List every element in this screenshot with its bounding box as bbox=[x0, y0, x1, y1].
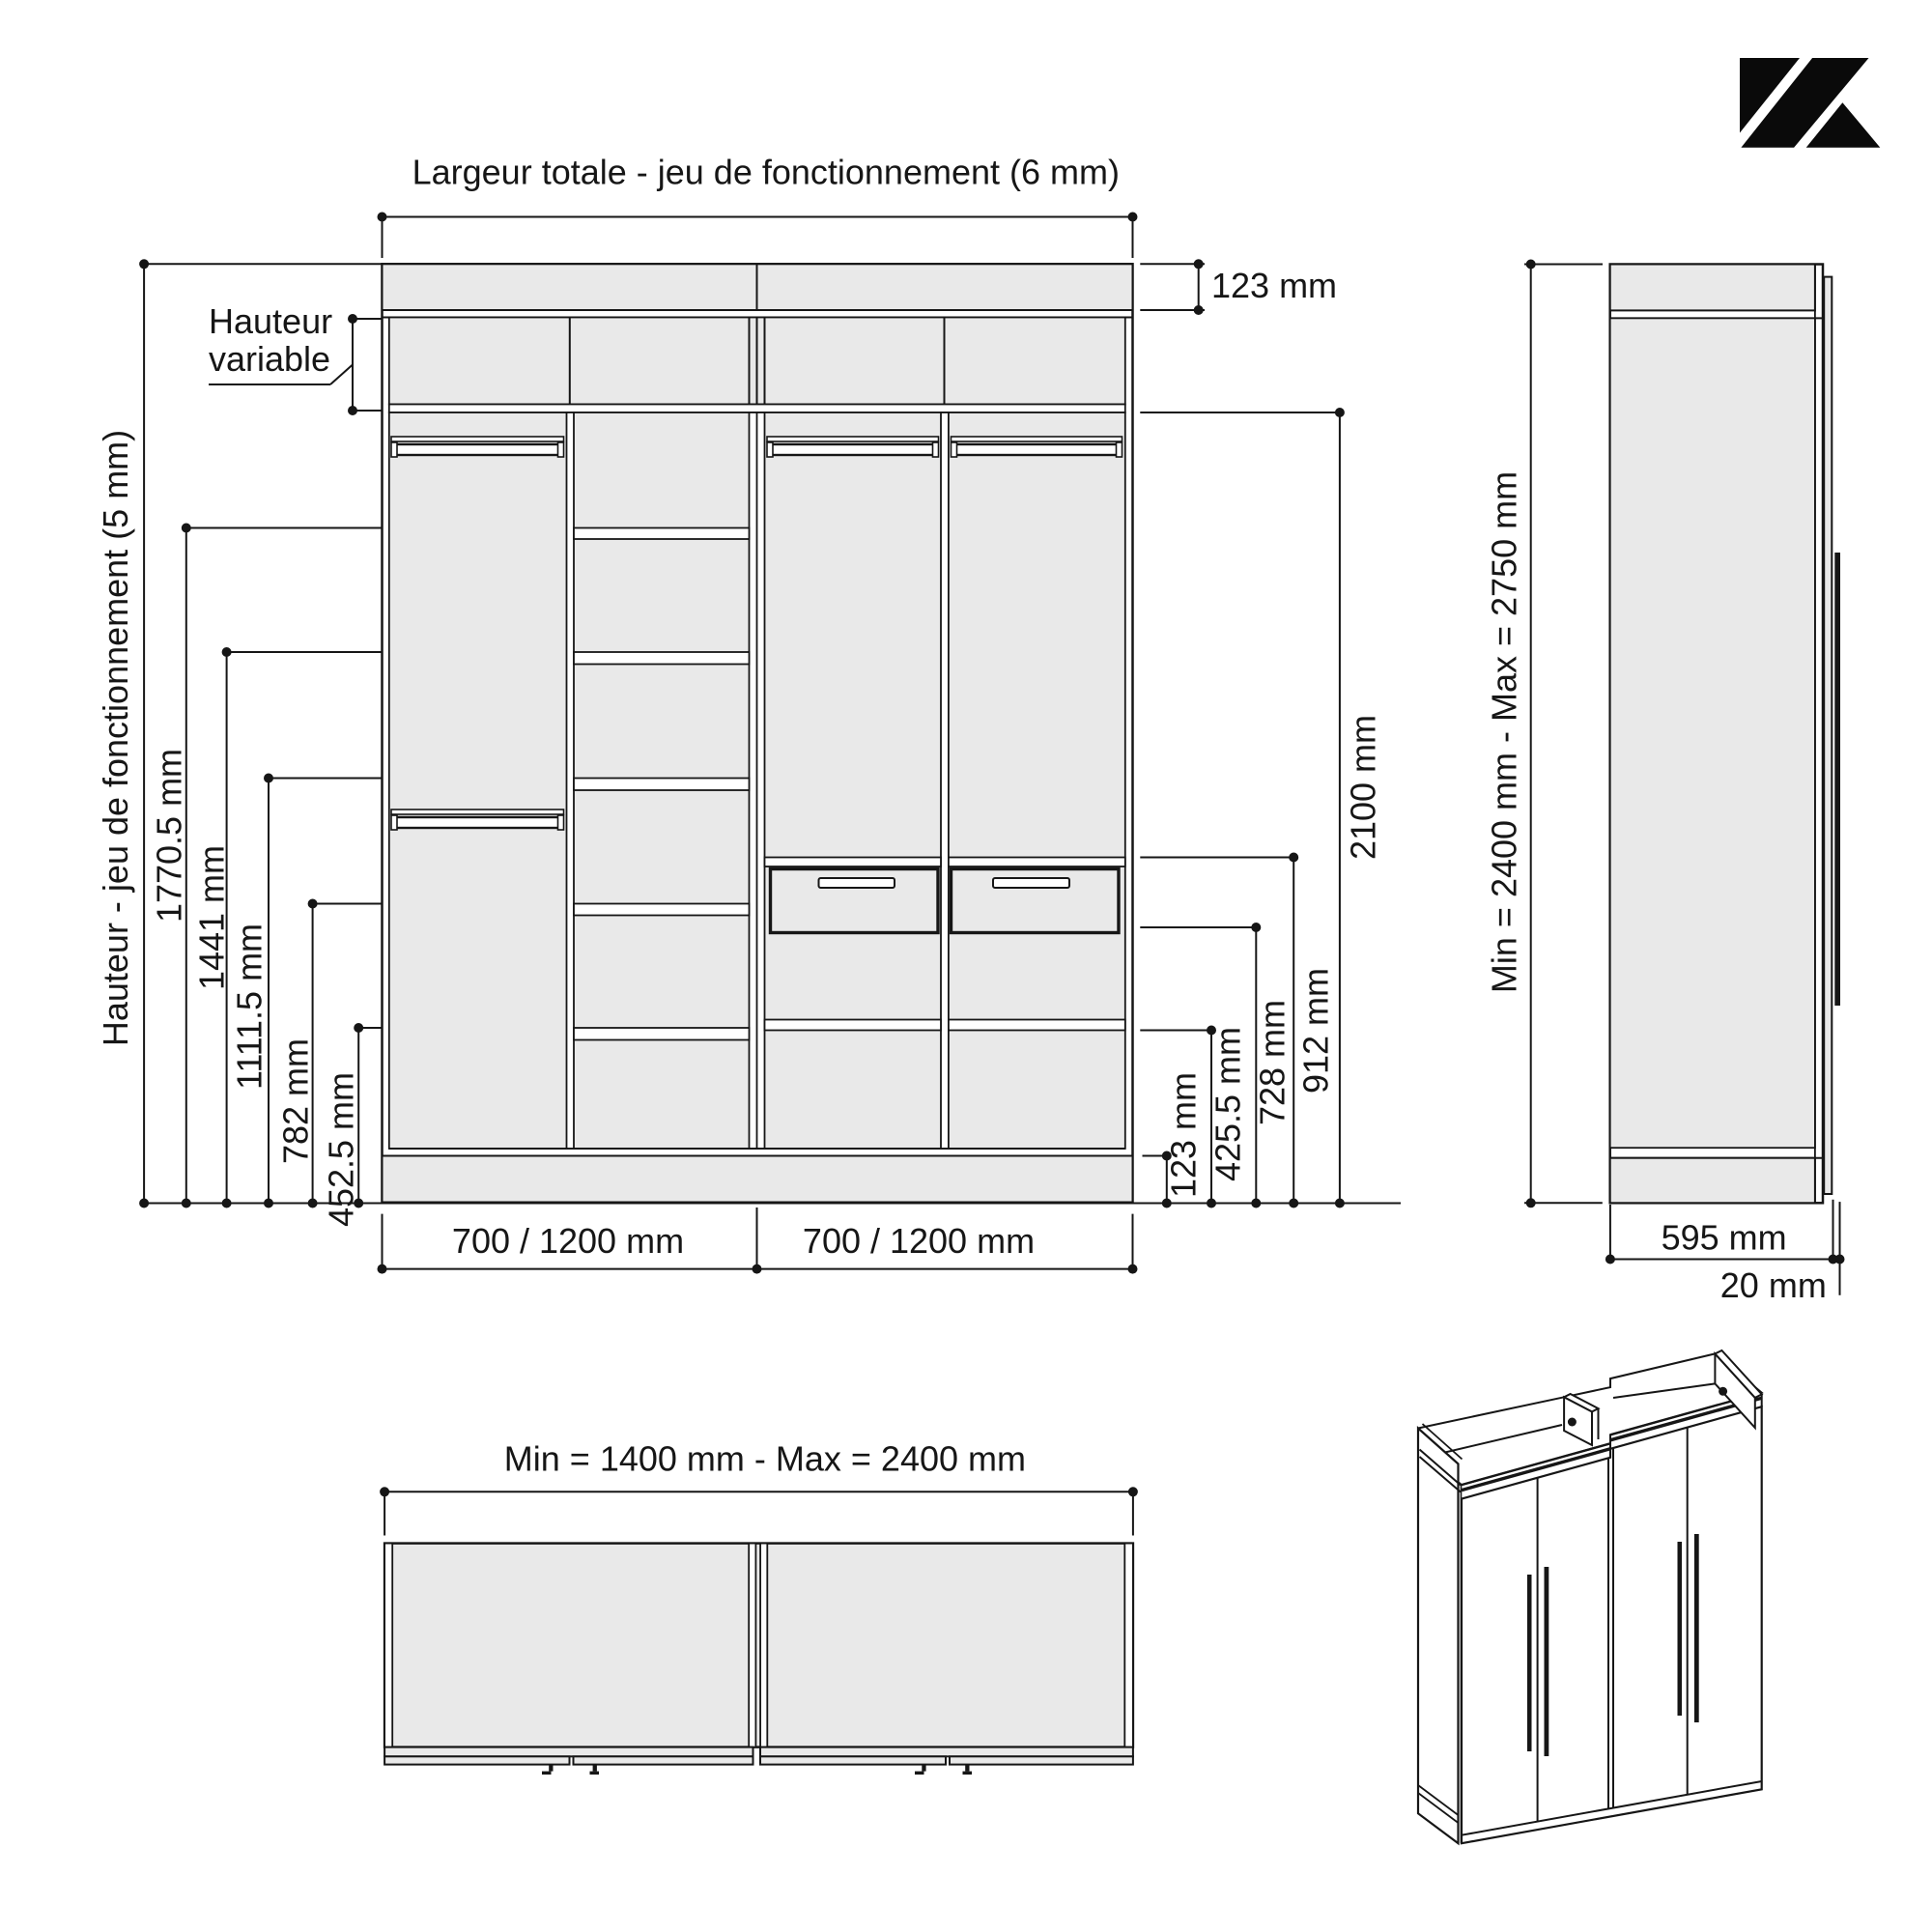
svg-text:700 / 1200 mm: 700 / 1200 mm bbox=[803, 1221, 1035, 1261]
svg-text:912 mm: 912 mm bbox=[1296, 968, 1336, 1094]
svg-text:1770.5 mm: 1770.5 mm bbox=[150, 749, 189, 923]
svg-text:Largeur totale - jeu de foncti: Largeur totale - jeu de fonctionnement (… bbox=[412, 153, 1120, 192]
svg-text:1441 mm: 1441 mm bbox=[192, 845, 232, 990]
svg-text:452.5 mm: 452.5 mm bbox=[322, 1072, 361, 1227]
svg-text:700 / 1200 mm: 700 / 1200 mm bbox=[452, 1221, 684, 1261]
svg-text:Min = 1400 mm - Max = 2400 mm: Min = 1400 mm - Max = 2400 mm bbox=[504, 1439, 1026, 1479]
svg-text:Hauteur: Hauteur bbox=[209, 301, 332, 341]
svg-text:123 mm: 123 mm bbox=[1164, 1072, 1204, 1198]
svg-text:2100 mm: 2100 mm bbox=[1344, 715, 1383, 860]
svg-text:123 mm: 123 mm bbox=[1211, 266, 1337, 305]
svg-text:Min = 2400 mm - Max = 2750 mm: Min = 2400 mm - Max = 2750 mm bbox=[1485, 471, 1524, 993]
svg-text:782 mm: 782 mm bbox=[276, 1038, 316, 1164]
svg-text:425.5 mm: 425.5 mm bbox=[1208, 1027, 1248, 1181]
svg-text:1111.5 mm: 1111.5 mm bbox=[230, 923, 270, 1090]
svg-text:20 mm: 20 mm bbox=[1720, 1265, 1827, 1305]
svg-text:Hauteur - jeu de fonctionnemen: Hauteur - jeu de fonctionnement (5 mm) bbox=[96, 430, 135, 1046]
svg-text:variable: variable bbox=[209, 339, 330, 379]
svg-text:595 mm: 595 mm bbox=[1662, 1218, 1787, 1258]
svg-text:728 mm: 728 mm bbox=[1253, 1000, 1293, 1125]
